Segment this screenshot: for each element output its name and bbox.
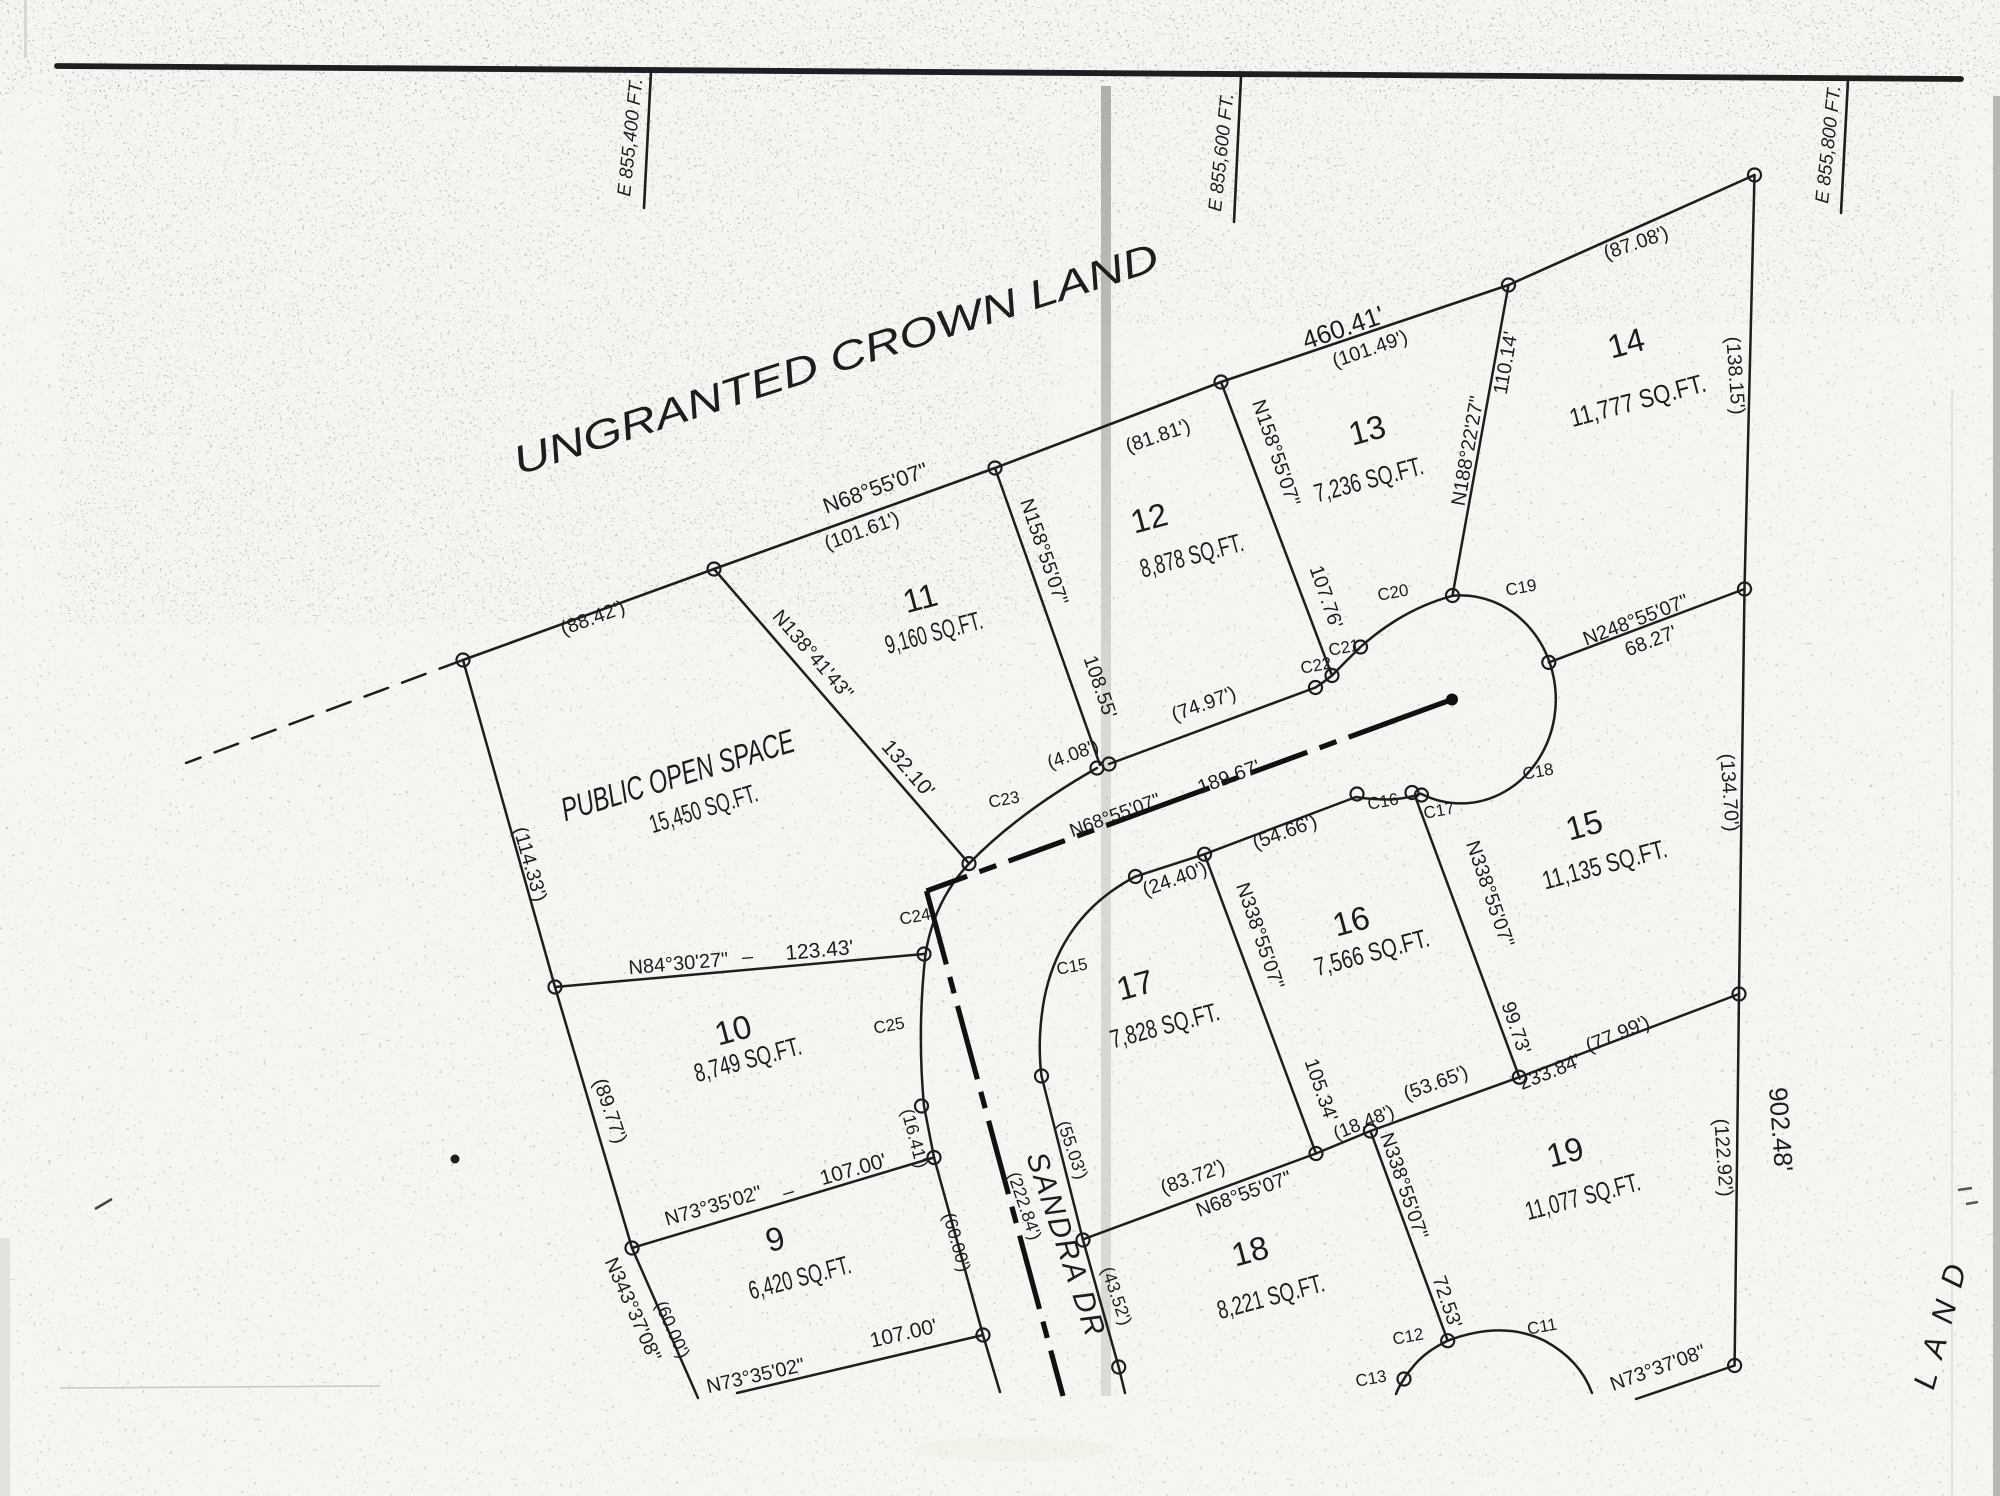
svg-text:902.48': 902.48'	[1763, 1086, 1799, 1172]
